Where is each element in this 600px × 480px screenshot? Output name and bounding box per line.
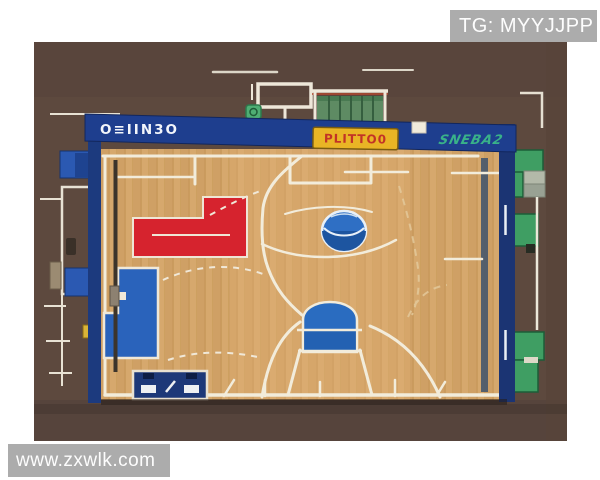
watermark-bottom-left: www.zxwlk.com [8,444,170,477]
left-blue-mat-bottom [65,268,90,296]
left-tan-case [50,262,61,289]
scorers-table [133,371,207,399]
banner-sign-text: PLITTO0 [324,131,387,146]
banner-right-text: SNEBA2 [437,133,505,148]
banner-small-box [412,122,426,133]
court-illustration: O≡IIN3O PLITTO0 SNEBA2 [0,0,600,480]
screenshot: O≡IIN3O PLITTO0 SNEBA2 TG: MYYJJPP www.z… [0,0,600,480]
banner-yellow-sign: PLITTO0 [313,127,398,149]
watermark-top-right: TG: MYYJJPP [450,10,597,42]
center-ball [322,211,366,251]
left-border-strip [88,137,101,403]
right-border-strip [499,124,515,402]
basketball-court: O≡IIN3O PLITTO0 SNEBA2 [34,114,567,414]
court-right-inner-edge [481,158,488,392]
banner-left-text: O≡IIN3O [100,122,179,138]
bottom-key [297,302,362,352]
green-emblem-icon [246,105,261,119]
